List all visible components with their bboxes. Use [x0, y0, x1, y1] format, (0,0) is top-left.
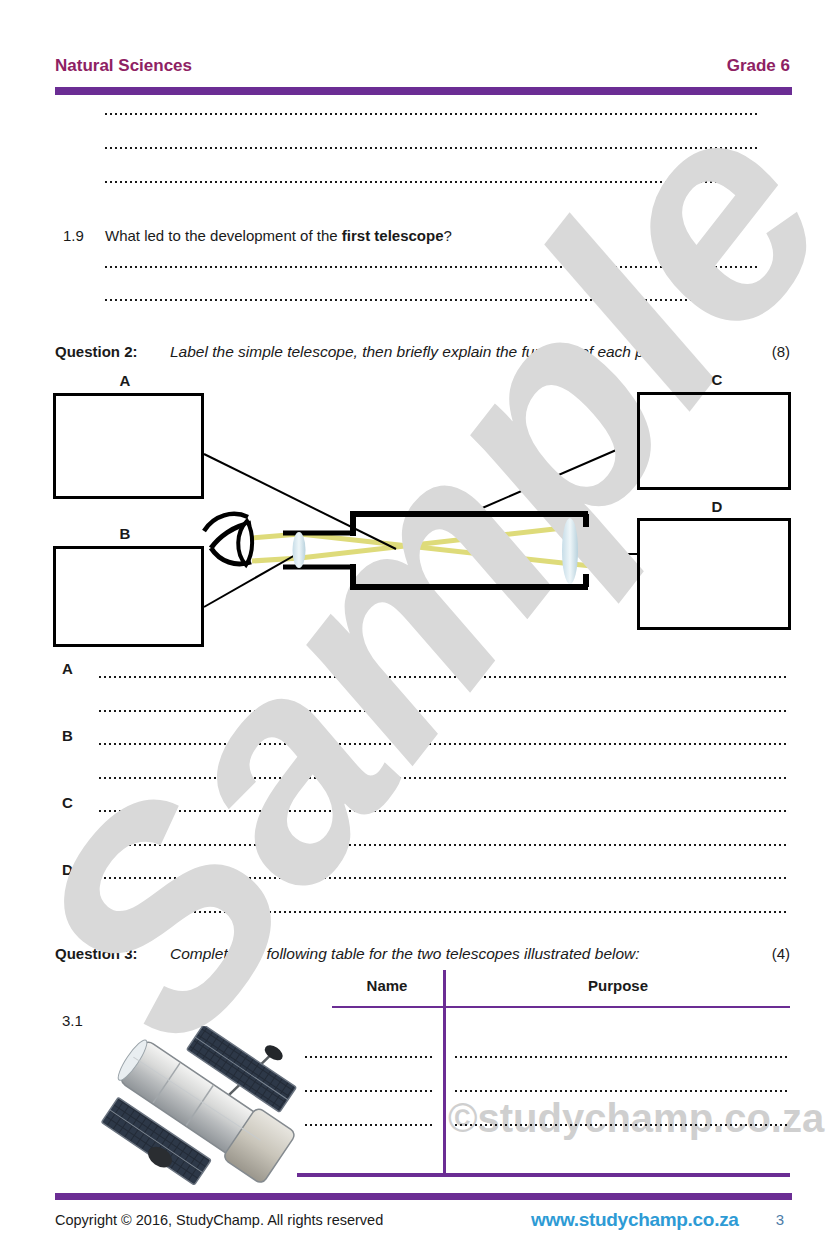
- question-3-instruction: Complete the following table for the two…: [170, 945, 730, 963]
- table-bottom-rule: [297, 1173, 790, 1177]
- site-watermark: ©studychamp.co.za: [448, 1096, 798, 1141]
- answer-dotted-line: [99, 710, 787, 712]
- question-3-label: Question 3:: [55, 945, 138, 963]
- answer-dotted-line: [99, 877, 787, 879]
- answer-dotted-line: [99, 743, 787, 745]
- table-header-purpose: Purpose: [446, 977, 790, 994]
- answer-dotted-line: [99, 777, 787, 779]
- worksheet-page: Natural Sciences Grade 6 1.9 What led to…: [0, 0, 832, 1248]
- answer-letter-c: C: [62, 794, 73, 811]
- table-row-number: 3.1: [62, 1012, 83, 1030]
- objective-lens: [562, 518, 578, 584]
- question-3-marks: (4): [772, 945, 790, 962]
- telescope-tube: [350, 512, 588, 590]
- answer-dotted-line: [99, 911, 787, 913]
- footer-copyright: Copyright © 2016, StudyChamp. All rights…: [55, 1212, 383, 1228]
- simple-telescope-diagram: [0, 0, 832, 700]
- hubble-space-telescope: [98, 1026, 318, 1196]
- answer-dotted-line: [305, 1090, 433, 1092]
- eyepiece-lens: [293, 532, 306, 568]
- answer-letter-b: B: [62, 727, 73, 744]
- answer-letter-d: D: [62, 861, 73, 878]
- table-header-rule: [332, 1006, 790, 1008]
- footer-rule: [55, 1193, 792, 1200]
- table-header-name: Name: [332, 977, 442, 994]
- answer-dotted-line: [99, 844, 787, 846]
- page-number: 3: [776, 1211, 784, 1228]
- answer-dotted-line: [305, 1056, 433, 1058]
- table-column-divider: [443, 970, 446, 1176]
- eye-icon: [204, 514, 252, 565]
- answer-dotted-line: [455, 1090, 787, 1092]
- answer-dotted-line: [455, 1124, 787, 1126]
- answer-dotted-line: [305, 1124, 433, 1126]
- answer-dotted-line: [455, 1056, 787, 1058]
- answer-dotted-line: [99, 810, 787, 812]
- footer-website-link[interactable]: www.studychamp.co.za: [531, 1209, 739, 1231]
